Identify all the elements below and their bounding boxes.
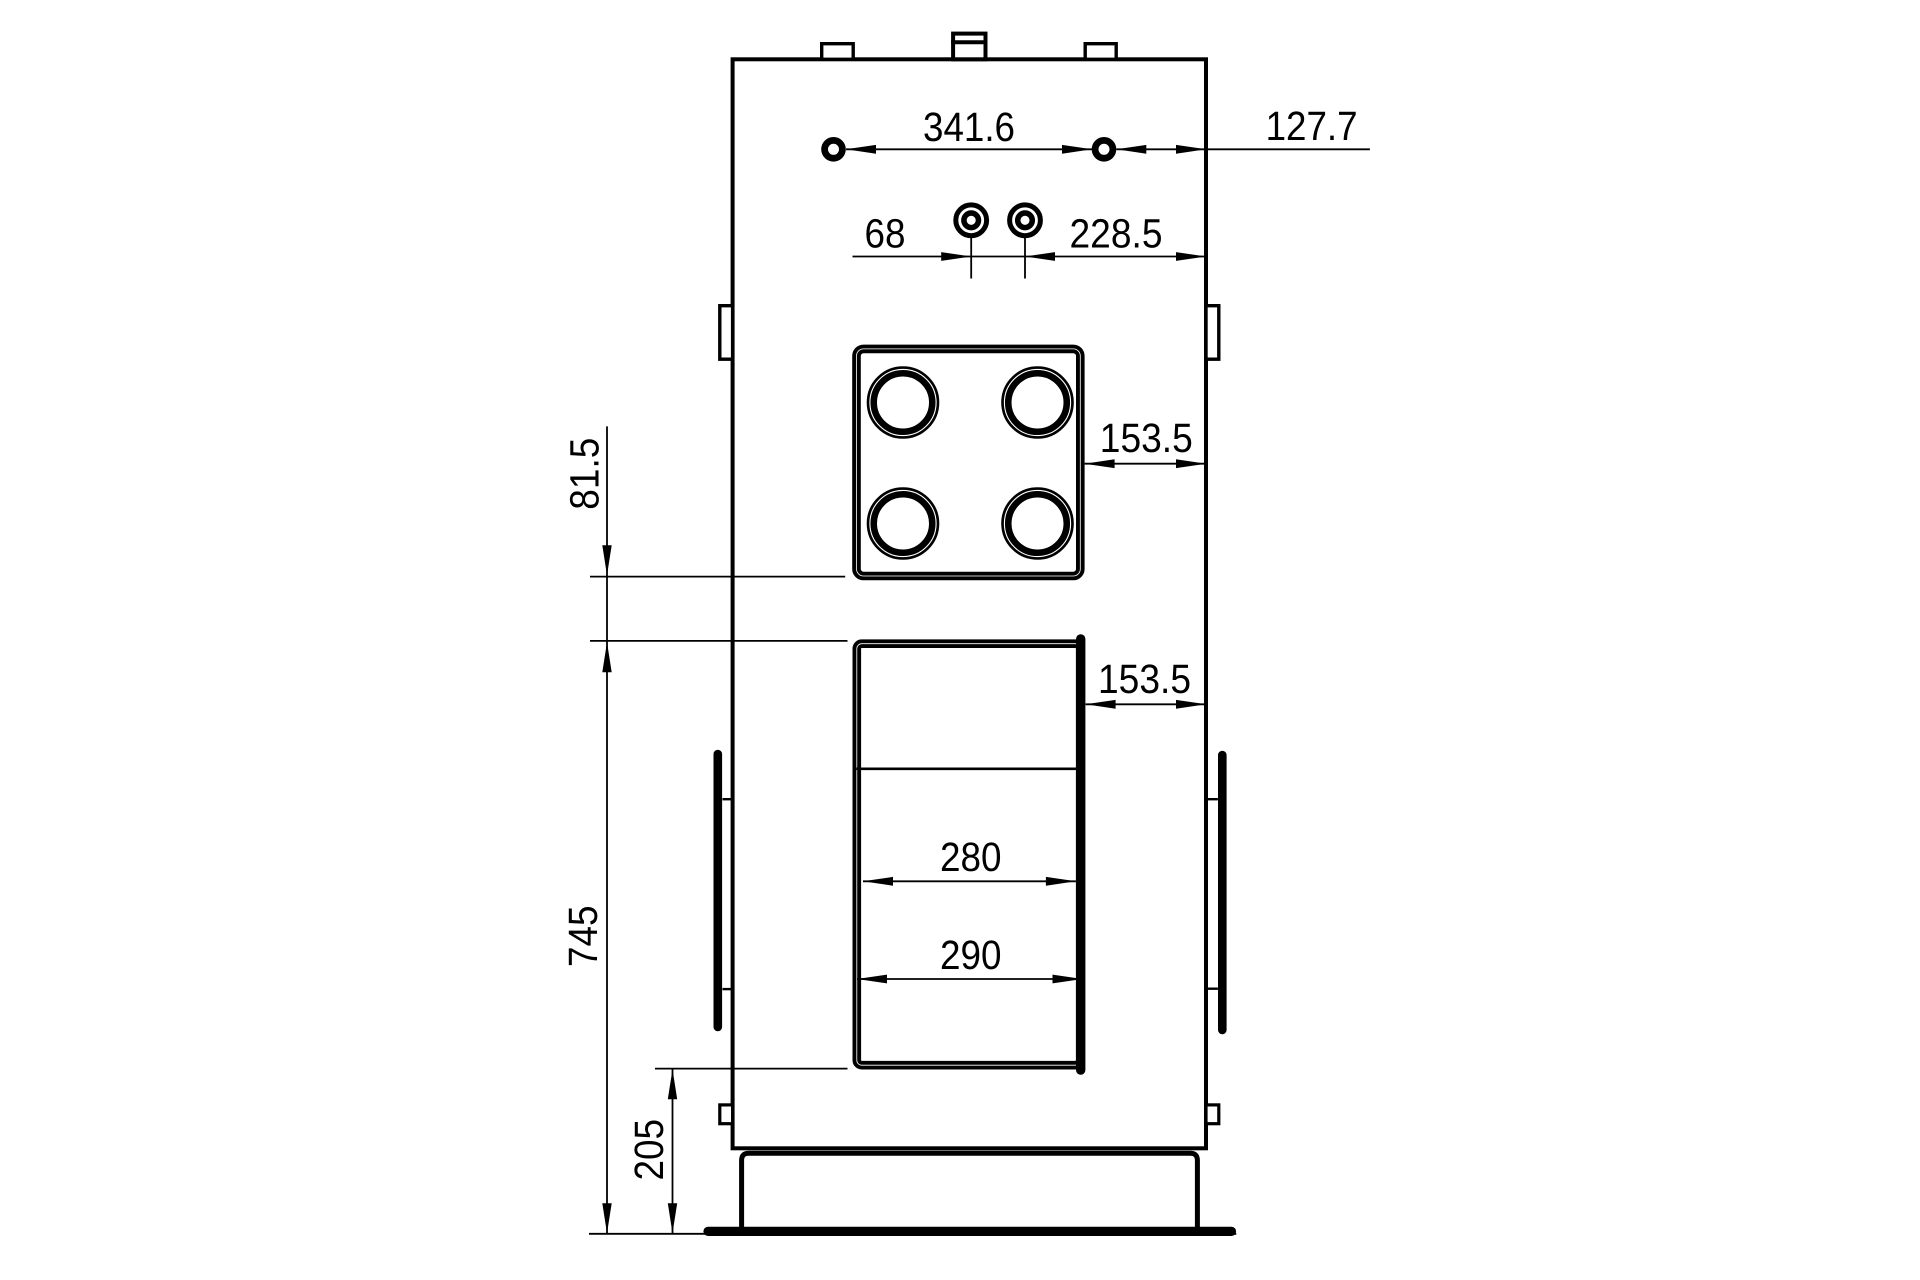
svg-text:280: 280 [940,834,1002,880]
svg-text:68: 68 [865,211,906,257]
svg-text:153.5: 153.5 [1100,415,1193,461]
svg-text:81.5: 81.5 [562,438,608,510]
svg-text:341.6: 341.6 [923,104,1015,150]
svg-text:290: 290 [940,932,1002,978]
svg-text:205: 205 [626,1119,672,1181]
svg-text:745: 745 [560,906,606,968]
svg-text:228.5: 228.5 [1070,211,1163,257]
svg-text:127.7: 127.7 [1266,103,1358,149]
svg-text:153.5: 153.5 [1098,656,1191,702]
